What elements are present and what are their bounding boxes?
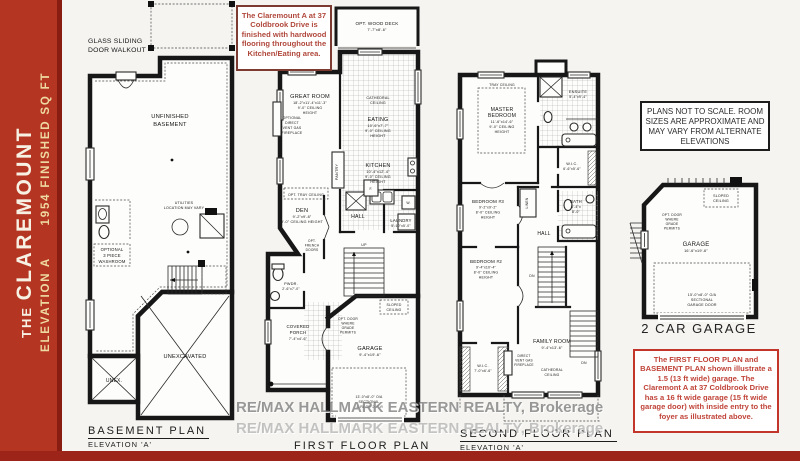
svg-text:9'-4"x19'-6": 9'-4"x19'-6" [359,353,381,357]
svg-text:PERMITS: PERMITS [664,227,681,231]
hardwood-note-text: The Claremount A at 37 Coldbrook Drive i… [242,11,327,58]
svg-text:GRADE: GRADE [666,222,679,226]
svg-text:5'-4"x: 5'-4"x [571,205,581,209]
svg-text:11'-6"x14'-6": 11'-6"x14'-6" [491,120,514,124]
svg-text:5'-10"x5'-0": 5'-10"x5'-0" [391,224,411,228]
deck-label: OPT. WOOD DECK [355,21,399,26]
hall2-label: HALL [537,231,550,237]
svg-text:8'-0": 8'-0" [572,210,581,214]
second-floor-title-text: SECOND FLOOR PLAN [460,428,617,442]
unfinished-basement-label: UNFINISHED [151,114,188,120]
walkout-label: GLASS SLIDING [88,38,142,45]
wic1-label: W.I.C. [566,162,578,166]
basement-plan-drawing: OPTIONAL 3 PIECE WASHROOM GLASS SLIDING … [84,0,240,424]
kitchen-label: KITCHEN [365,163,390,169]
sloped-ceiling-label: SLOPED [387,303,402,307]
svg-text:DOORS: DOORS [306,248,319,252]
sloped2-label: SLOPED [713,194,729,198]
svg-text:7'-0"x6'-6": 7'-0"x6'-6" [474,369,492,373]
svg-text:BASEMENT: BASEMENT [153,122,187,128]
svg-text:VENT GAS: VENT GAS [515,359,533,363]
svg-text:9'-0" CEILING: 9'-0" CEILING [298,106,323,110]
bedroom3-label: BEDROOM #3 [472,199,504,204]
porch-label: COVERED [286,324,309,329]
ensuite-label: ENSUITE [569,89,587,94]
svg-text:9'-0" CEILING HEIGHT: 9'-0" CEILING HEIGHT [281,220,324,224]
svg-text:WHERE: WHERE [341,322,355,326]
garage-note: The FIRST FLOOR PLAN and BASEMENT PLAN s… [633,349,779,433]
opt-door2-label: OPT. DOOR [662,213,682,217]
sidebar-title-name: CLAREMOUNT [13,126,36,300]
svg-text:HEIGHT: HEIGHT [481,216,496,220]
svg-text:8'-0" CEILING: 8'-0" CEILING [476,211,501,215]
svg-text:3 PIECE: 3 PIECE [103,253,120,258]
cathedral2-label: CATHEDRAL [541,368,563,372]
not-to-scale-note: PLANS NOT TO SCALE. ROOM SIZES ARE APPRO… [640,101,770,151]
svg-text:9'-2"x9'-8": 9'-2"x9'-8" [293,215,312,219]
dn2-label: DN [581,361,587,365]
svg-text:7'-7"x8'-6": 7'-7"x8'-6" [367,28,387,32]
post-dot [187,251,190,254]
svg-text:PORCH: PORCH [290,330,307,335]
second-floor-drawing: TRAY CEILING MASTER BEDROOM 11'-6"x14'-6… [452,55,637,427]
hall-label: HALL [351,214,365,220]
svg-text:SECTIONAL: SECTIONAL [358,400,379,404]
svg-text:GARAGE DOOR: GARAGE DOOR [355,405,383,409]
svg-text:FIREPLACE: FIREPLACE [282,131,303,135]
svg-text:FIREPLACE: FIREPLACE [514,363,534,367]
svg-text:2'-6"x7'-0": 2'-6"x7'-0" [282,287,300,291]
svg-text:8'-0" CEILING: 8'-0" CEILING [474,271,499,275]
laundry-label: LAUNDRY [390,218,411,223]
svg-text:WASHROOM: WASHROOM [98,259,125,264]
svg-text:BEDROOM: BEDROOM [488,113,516,119]
bath-label: BATH [570,199,582,204]
garage-label: GARAGE [357,346,382,352]
basement-title-text: BASEMENT PLAN [88,425,209,439]
svg-text:CEILING: CEILING [545,373,560,377]
wic1-closet [588,151,596,185]
linen-label: LINEN [525,197,529,208]
sidebar-subtitle: ELEVATION A 1954 FINISHED SQ FT [40,72,52,352]
eating-label: EATING [368,117,389,123]
tray-ceiling-label: OPT. TRAY CEILING [288,193,324,197]
tray-ceiling2-label: TRAY CEILING [489,83,515,87]
up-label: UP [361,243,367,247]
sidebar-title: THE CLAREMOUNT [13,126,37,338]
svg-text:5'-4"x9'-4": 5'-4"x9'-4" [569,95,587,99]
svg-text:DIRECT: DIRECT [285,121,299,125]
garage2-label: GARAGE [683,242,710,248]
svg-text:9'-4"x13'-6": 9'-4"x13'-6" [542,346,563,350]
fireplace2-label: DIRECT [517,354,530,358]
svg-text:GARAGE DOOR: GARAGE DOOR [687,303,717,307]
family-fireplace [504,351,512,375]
washer-label: W. [406,201,410,205]
garage-door-label: 13'-0"x8'-0" O/A [355,395,383,399]
svg-text:6'-6"x5'-6": 6'-6"x5'-6" [563,167,581,171]
svg-text:VENT GAS: VENT GAS [283,126,302,130]
utilities-label: UTILITIES [175,201,194,205]
wic2-label: W.I.C. [477,364,489,368]
svg-text:PERMITS: PERMITS [340,331,357,335]
outside-stairs [630,223,642,263]
bottom-red-band [0,451,800,461]
post-dot [171,159,174,162]
svg-text:16'-6"x19'-6": 16'-6"x19'-6" [684,249,708,253]
sectional-door-label: 15'-0"x8'-0" O/A [688,293,717,297]
great-room-label: GREAT ROOM [290,94,330,100]
bedroom2-label: BEDROOM #2 [470,259,502,264]
unex-label: UNEX. [106,378,122,384]
floorplan-sheet: THE CLAREMOUNT ELEVATION A 1954 FINISHED… [0,0,800,461]
sidebar-elevation: ELEVATION A [40,257,52,352]
garage-opt-door [641,231,648,249]
basement-title: BASEMENT PLAN ELEVATION 'A' [88,421,209,449]
unexcavated-label: UNEXCAVATED [164,354,207,360]
svg-text:WHERE: WHERE [665,218,679,222]
svg-text:9'-0" CEILING: 9'-0" CEILING [365,129,391,133]
opt-door-label: OPT. DOOR [338,317,358,321]
svg-text:HEIGHT: HEIGHT [303,111,318,115]
family-room-label: FAMILY ROOM [533,339,571,345]
furnace-label: F. [369,187,372,191]
svg-text:9'-0" CEILING: 9'-0" CEILING [365,175,391,179]
svg-text:10'-4"x12'-4": 10'-4"x12'-4" [366,170,390,174]
svg-text:LOCATION MAY VARY: LOCATION MAY VARY [164,206,205,210]
svg-text:CEILING: CEILING [387,308,402,312]
dn1-label: DN [529,274,535,278]
basement-deck-outline [148,1,235,51]
svg-text:HEIGHT: HEIGHT [370,134,386,138]
wood-deck: OPT. WOOD DECK 7'-7"x8'-6" [336,8,418,48]
svg-text:9'-4"x10'-4": 9'-4"x10'-4" [476,266,497,270]
svg-text:CEILING: CEILING [370,101,386,105]
den-label: DEN [296,208,308,214]
pwdr-label: PWDR. [284,282,298,286]
hardwood-note: The Claremount A at 37 Coldbrook Drive i… [236,5,332,71]
svg-text:SECTIONAL: SECTIONAL [691,298,713,302]
svg-text:7'-4"x4'-6": 7'-4"x4'-6" [289,337,308,341]
svg-text:9'-0" CEILING: 9'-0" CEILING [489,125,514,129]
pantry-label: PANTRY [335,164,339,181]
sidebar-sqft: 1954 FINISHED SQ FT [40,72,52,226]
roof-dashes [460,395,600,421]
svg-text:GRADE: GRADE [342,326,355,330]
svg-text:HEIGHT: HEIGHT [370,180,386,184]
svg-text:9'-2"x9'-2": 9'-2"x9'-2" [479,206,497,210]
svg-text:HEIGHT: HEIGHT [495,130,510,134]
garage-plan-drawing: SLOPED CEILING OPT. DOOR WHERE GRADE PER… [628,175,768,327]
svg-text:HEIGHT: HEIGHT [479,276,494,280]
second-floor-title: SECOND FLOOR PLAN ELEVATION 'A' [460,424,617,452]
cathedral-label: CATHEDRAL [366,96,389,100]
garage-note-text: The FIRST FLOOR PLAN and BASEMENT PLAN s… [640,355,772,421]
basement-elevation-text: ELEVATION 'A' [88,440,209,449]
svg-text:OPTIONAL: OPTIONAL [283,116,302,120]
sidebar-title-prefix: THE [19,306,34,338]
french-doors-label: OPT. [308,239,316,243]
svg-text:18'-2"x11'-4"x11'-3": 18'-2"x11'-4"x11'-3" [293,101,327,105]
garage-plan-title: 2 CAR GARAGE [628,321,770,336]
svg-text:FRENCH: FRENCH [305,244,320,248]
washroom-label: OPTIONAL [101,247,124,252]
svg-text:DOOR WALKOUT: DOOR WALKOUT [88,47,146,54]
svg-text:10'-6"x7'-7": 10'-6"x7'-7" [368,124,389,128]
svg-text:CEILING: CEILING [713,199,729,203]
not-to-scale-text: PLANS NOT TO SCALE. ROOM SIZES ARE APPRO… [646,107,765,146]
